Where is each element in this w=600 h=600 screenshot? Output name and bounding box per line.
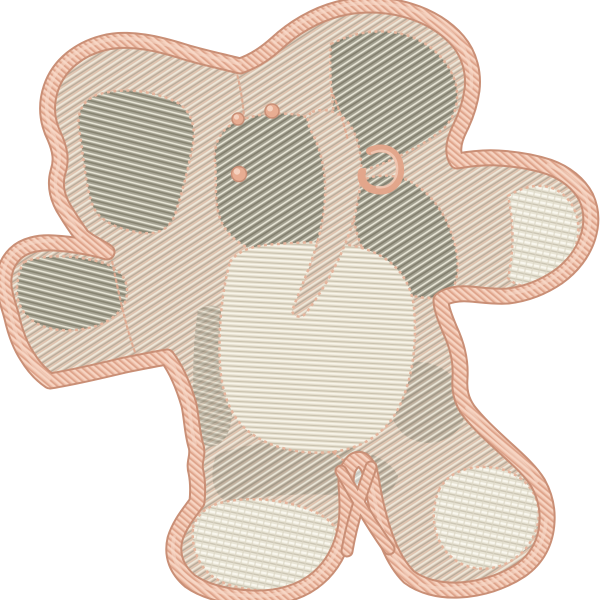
eyebrow-knot-left bbox=[232, 113, 244, 125]
elephant-embroidery-graphic bbox=[0, 0, 600, 600]
eye-knot-left bbox=[232, 167, 247, 182]
eyebrow-knot-right bbox=[265, 104, 279, 118]
embroidery-design-canvas bbox=[0, 0, 600, 600]
